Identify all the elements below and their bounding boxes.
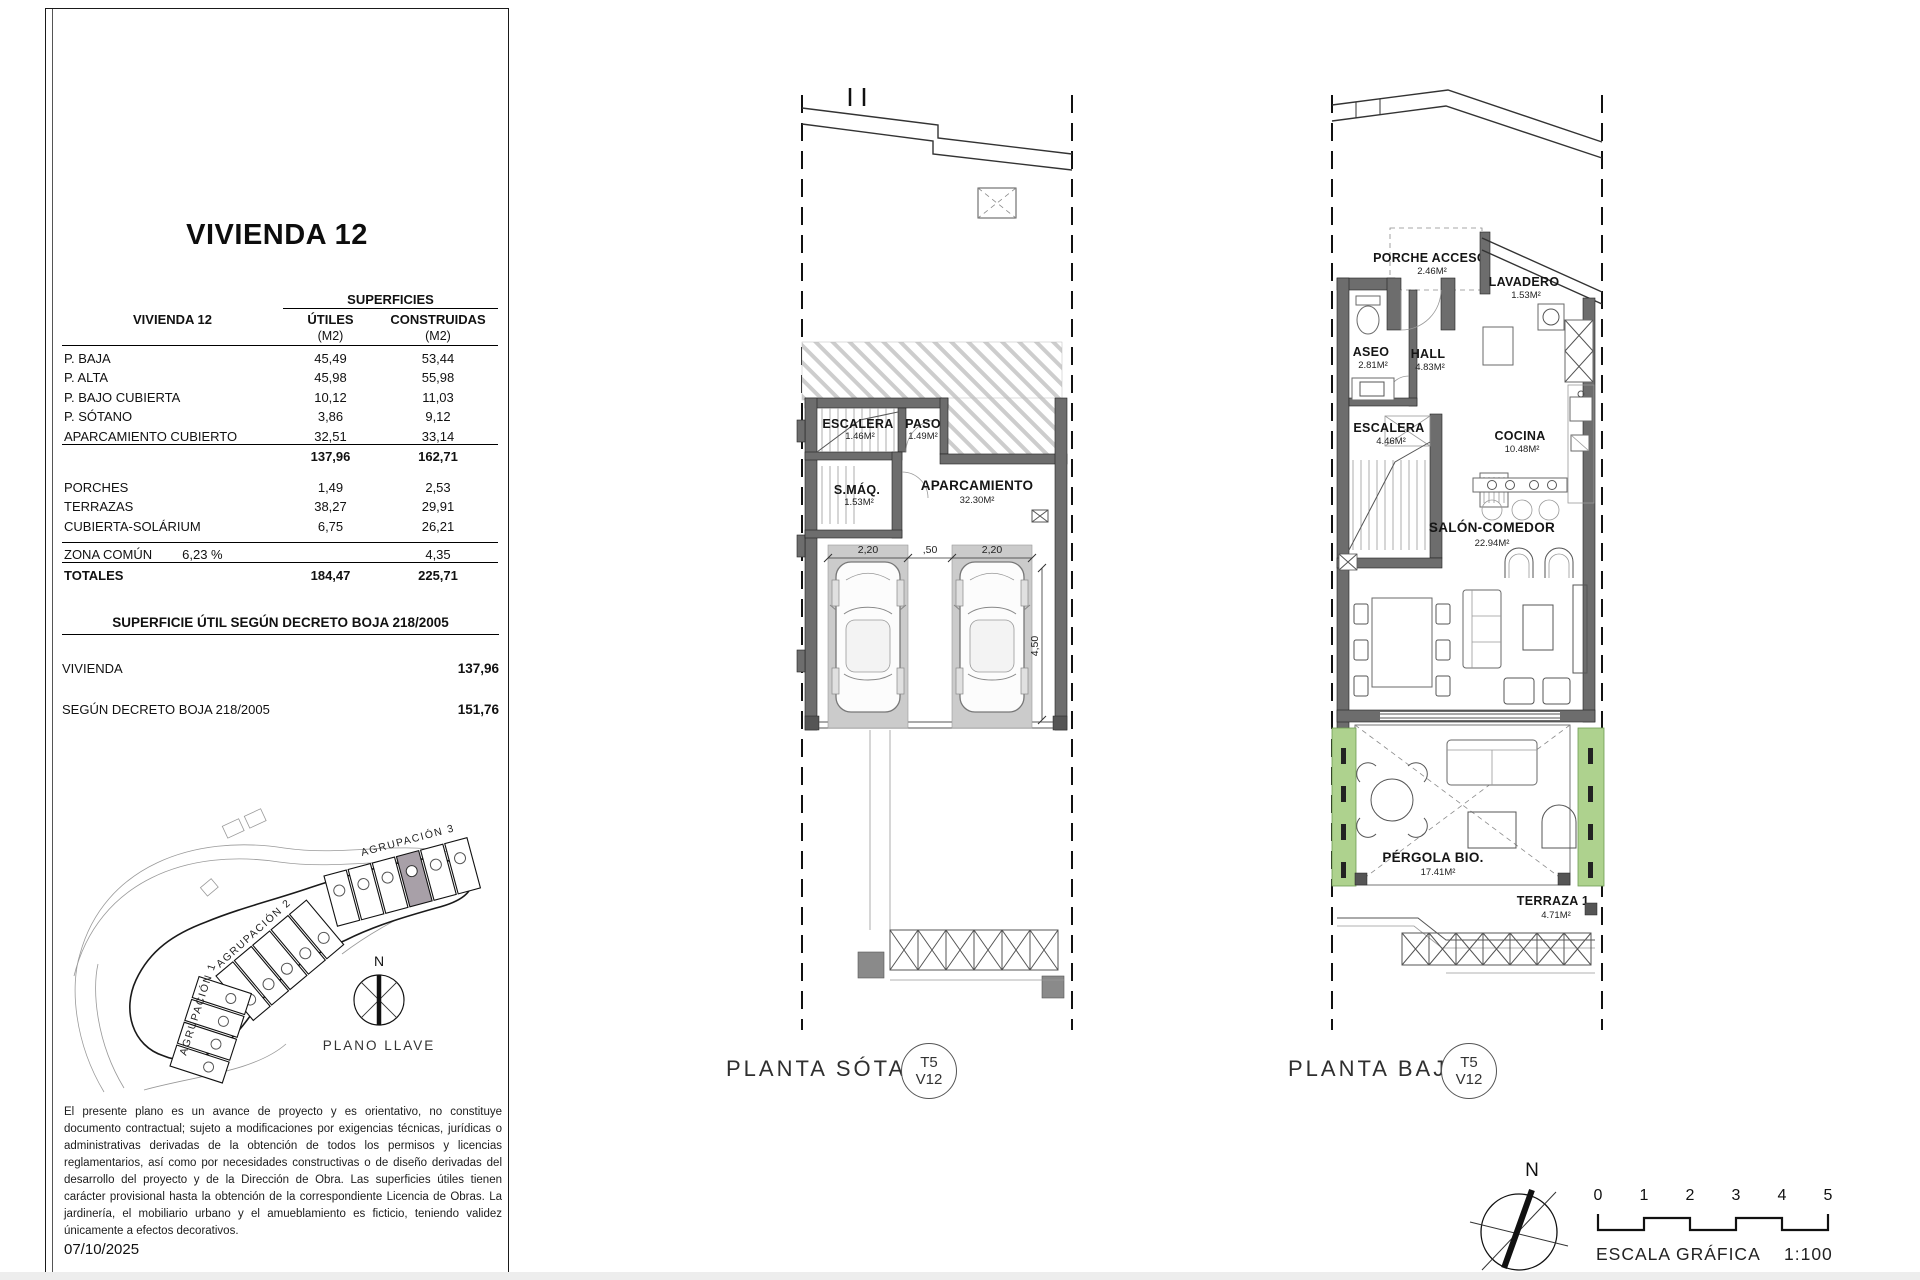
col-header-construidas: CONSTRUIDAS	[378, 312, 498, 327]
table-group-header: SUPERFICIES	[283, 292, 498, 309]
col-header-utiles: ÚTILES	[283, 312, 378, 327]
svg-text:22.94M²: 22.94M²	[1475, 538, 1510, 549]
tall-cabinet-icon	[1565, 320, 1593, 382]
svg-text:ESCALERA: ESCALERA	[822, 417, 893, 431]
disclaimer-text: El presente plano es un avance de proyec…	[64, 1104, 502, 1240]
zona-comun-row: ZONA COMÚN 6,23 % 4,35	[62, 542, 498, 564]
svg-text:4.46M²: 4.46M²	[1376, 436, 1406, 447]
key-plan-caption: PLANO LLAVE	[323, 1038, 436, 1053]
roof-outline	[1332, 90, 1602, 158]
svg-text:1.46M²: 1.46M²	[845, 431, 875, 442]
site-key-plan: AGRUPACIÓN 3 AGRUPACIÓN 2 AGRUPACIÓN 1 N…	[74, 804, 494, 1094]
decreto-row: SEGÚN DECRETO BOJA 218/2005 151,76	[62, 702, 499, 717]
sheet-date: 07/10/2025	[64, 1241, 139, 1258]
surfaces-table: SUPERFICIES VIVIENDA 12 ÚTILES CONSTRUID…	[62, 291, 498, 583]
svg-text:4.83M²: 4.83M²	[1415, 362, 1445, 373]
info-panel: VIVIENDA 12 SUPERFICIES VIVIENDA 12 ÚTIL…	[45, 8, 509, 1274]
svg-text:HALL: HALL	[1411, 347, 1446, 361]
svg-text:N: N	[1525, 1160, 1539, 1181]
table-row-header: VIVIENDA 12	[62, 312, 283, 327]
ottoman	[1468, 812, 1516, 848]
svg-text:PASO: PASO	[905, 417, 941, 431]
table-row: P. BAJA 45,49 53,44	[62, 346, 498, 366]
svg-text:,50: ,50	[923, 544, 938, 556]
roof-outline	[802, 108, 1072, 218]
north-compass-icon: N	[1462, 1152, 1577, 1277]
toilet-icon	[1356, 296, 1380, 334]
totals-row: TOTALES 184,47 225,71	[62, 563, 498, 583]
svg-text:32.30M²: 32.30M²	[960, 495, 995, 506]
unit-label: (M2)	[283, 329, 378, 343]
svg-text:2,20: 2,20	[982, 544, 1003, 556]
svg-text:N: N	[374, 953, 384, 969]
svg-text:SALÓN-COMEDOR: SALÓN-COMEDOR	[1429, 520, 1555, 535]
svg-text:3: 3	[1732, 1187, 1741, 1204]
section-cut-marks	[850, 88, 864, 106]
svg-text:LAVADERO: LAVADERO	[1489, 275, 1560, 289]
page-edge	[0, 1272, 1920, 1280]
table-row: TERRAZAS 38,27 29,91	[62, 495, 498, 515]
svg-text:2,20: 2,20	[858, 544, 879, 556]
zona-comun-pct: 6,23 %	[182, 547, 222, 562]
svg-text:4,50: 4,50	[1029, 636, 1041, 657]
subtotal-row: 137,96 162,71	[62, 445, 498, 465]
page-title: VIVIENDA 12	[46, 219, 508, 252]
table-row: P. BAJO CUBIERTA 10,12 11,03	[62, 385, 498, 405]
svg-text:10.48M²: 10.48M²	[1505, 444, 1540, 455]
svg-text:5: 5	[1824, 1187, 1833, 1204]
table-row: PORCHES 1,49 2,53	[62, 475, 498, 495]
baja-caption: PLANTA BAJA	[1288, 1056, 1465, 1082]
unit-badge-baja: T5 V12	[1441, 1043, 1497, 1099]
svg-text:APARCAMIENTO: APARCAMIENTO	[921, 478, 1034, 493]
hatch-area	[802, 342, 1062, 400]
pergola: PÉRGOLA BIO. 17.41M²	[1332, 725, 1604, 886]
unit-badge-sotano: T5 V12	[901, 1043, 957, 1099]
car-icon	[830, 562, 906, 712]
svg-text:2.46M²: 2.46M²	[1417, 266, 1447, 277]
svg-text:0: 0	[1594, 1187, 1603, 1204]
sofa	[1463, 590, 1501, 668]
table-row: P. SÓTANO 3,86 9,12	[62, 405, 498, 425]
svg-text:1: 1	[1640, 1187, 1649, 1204]
table-row: P. ALTA 45,98 55,98	[62, 366, 498, 386]
svg-text:PORCHE ACCESO: PORCHE ACCESO	[1373, 251, 1487, 265]
panel-edge-line	[52, 9, 53, 1273]
outdoor-sofa	[1447, 740, 1537, 785]
decreto-row: VIVIENDA 137,96	[62, 661, 499, 676]
unit-label: (M2)	[378, 329, 498, 343]
table-row: APARCAMIENTO CUBIERTO 32,51 33,14	[62, 424, 498, 445]
svg-text:17.41M²: 17.41M²	[1421, 867, 1456, 878]
round-table	[1357, 763, 1428, 838]
svg-text:COCINA: COCINA	[1494, 429, 1545, 443]
car-icon	[954, 562, 1030, 712]
scale-caption: ESCALA GRÁFICA	[1596, 1244, 1761, 1264]
svg-text:1.49M²: 1.49M²	[908, 431, 938, 442]
scale-ratio: 1:100	[1784, 1244, 1833, 1264]
lounge-chair	[1542, 805, 1576, 848]
plan-sotano: 2,20 ,50 2,20 4,50 ESCALERA 1.46M² PASO …	[780, 80, 1080, 1060]
svg-text:2: 2	[1686, 1187, 1695, 1204]
washing-machine-icon	[1538, 304, 1564, 330]
svg-text:4.71M²: 4.71M²	[1541, 910, 1571, 921]
driveway-walkway	[858, 730, 1064, 998]
svg-text:PÉRGOLA BIO.: PÉRGOLA BIO.	[1382, 850, 1483, 865]
decreto-title: SUPERFICIE ÚTIL SEGÚN DECRETO BOJA 218/2…	[62, 615, 499, 635]
table-row: CUBIERTA-SOLÁRIUM 6,75 26,21	[62, 514, 498, 534]
svg-text:1.53M²: 1.53M²	[1511, 290, 1541, 301]
plan-sheet: VIVIENDA 12 SUPERFICIES VIVIENDA 12 ÚTIL…	[0, 0, 1920, 1280]
svg-text:1.53M²: 1.53M²	[844, 497, 874, 508]
scale-bar: 0 1 2 3 4 5 ESCALA GRÁFICA 1:100	[1588, 1178, 1848, 1270]
sink-icon	[1352, 378, 1394, 400]
svg-text:ESCALERA: ESCALERA	[1353, 421, 1424, 435]
decreto-section: SUPERFICIE ÚTIL SEGÚN DECRETO BOJA 218/2…	[62, 615, 499, 717]
ramp-hatch	[948, 398, 1055, 454]
scale-bar-line	[1598, 1214, 1828, 1230]
plan-baja: PORCHE ACCESO 2.46M² LAV	[1300, 80, 1620, 1060]
hall: HALL 4.83M²	[1411, 347, 1446, 373]
svg-text:4: 4	[1778, 1187, 1787, 1204]
key-north-compass-icon: N	[354, 953, 404, 1025]
fridge-icon	[1483, 327, 1513, 365]
svg-text:S.MÁQ.: S.MÁQ.	[834, 482, 880, 497]
bottom-steps	[1337, 918, 1595, 973]
dining-table	[1354, 598, 1450, 696]
svg-text:TERRAZA 1: TERRAZA 1	[1517, 894, 1589, 908]
svg-text:2.81M²: 2.81M²	[1358, 360, 1388, 371]
svg-text:ASEO: ASEO	[1353, 345, 1390, 359]
terraza: TERRAZA 1 4.71M²	[1517, 894, 1597, 921]
site-outbuildings	[200, 809, 266, 896]
